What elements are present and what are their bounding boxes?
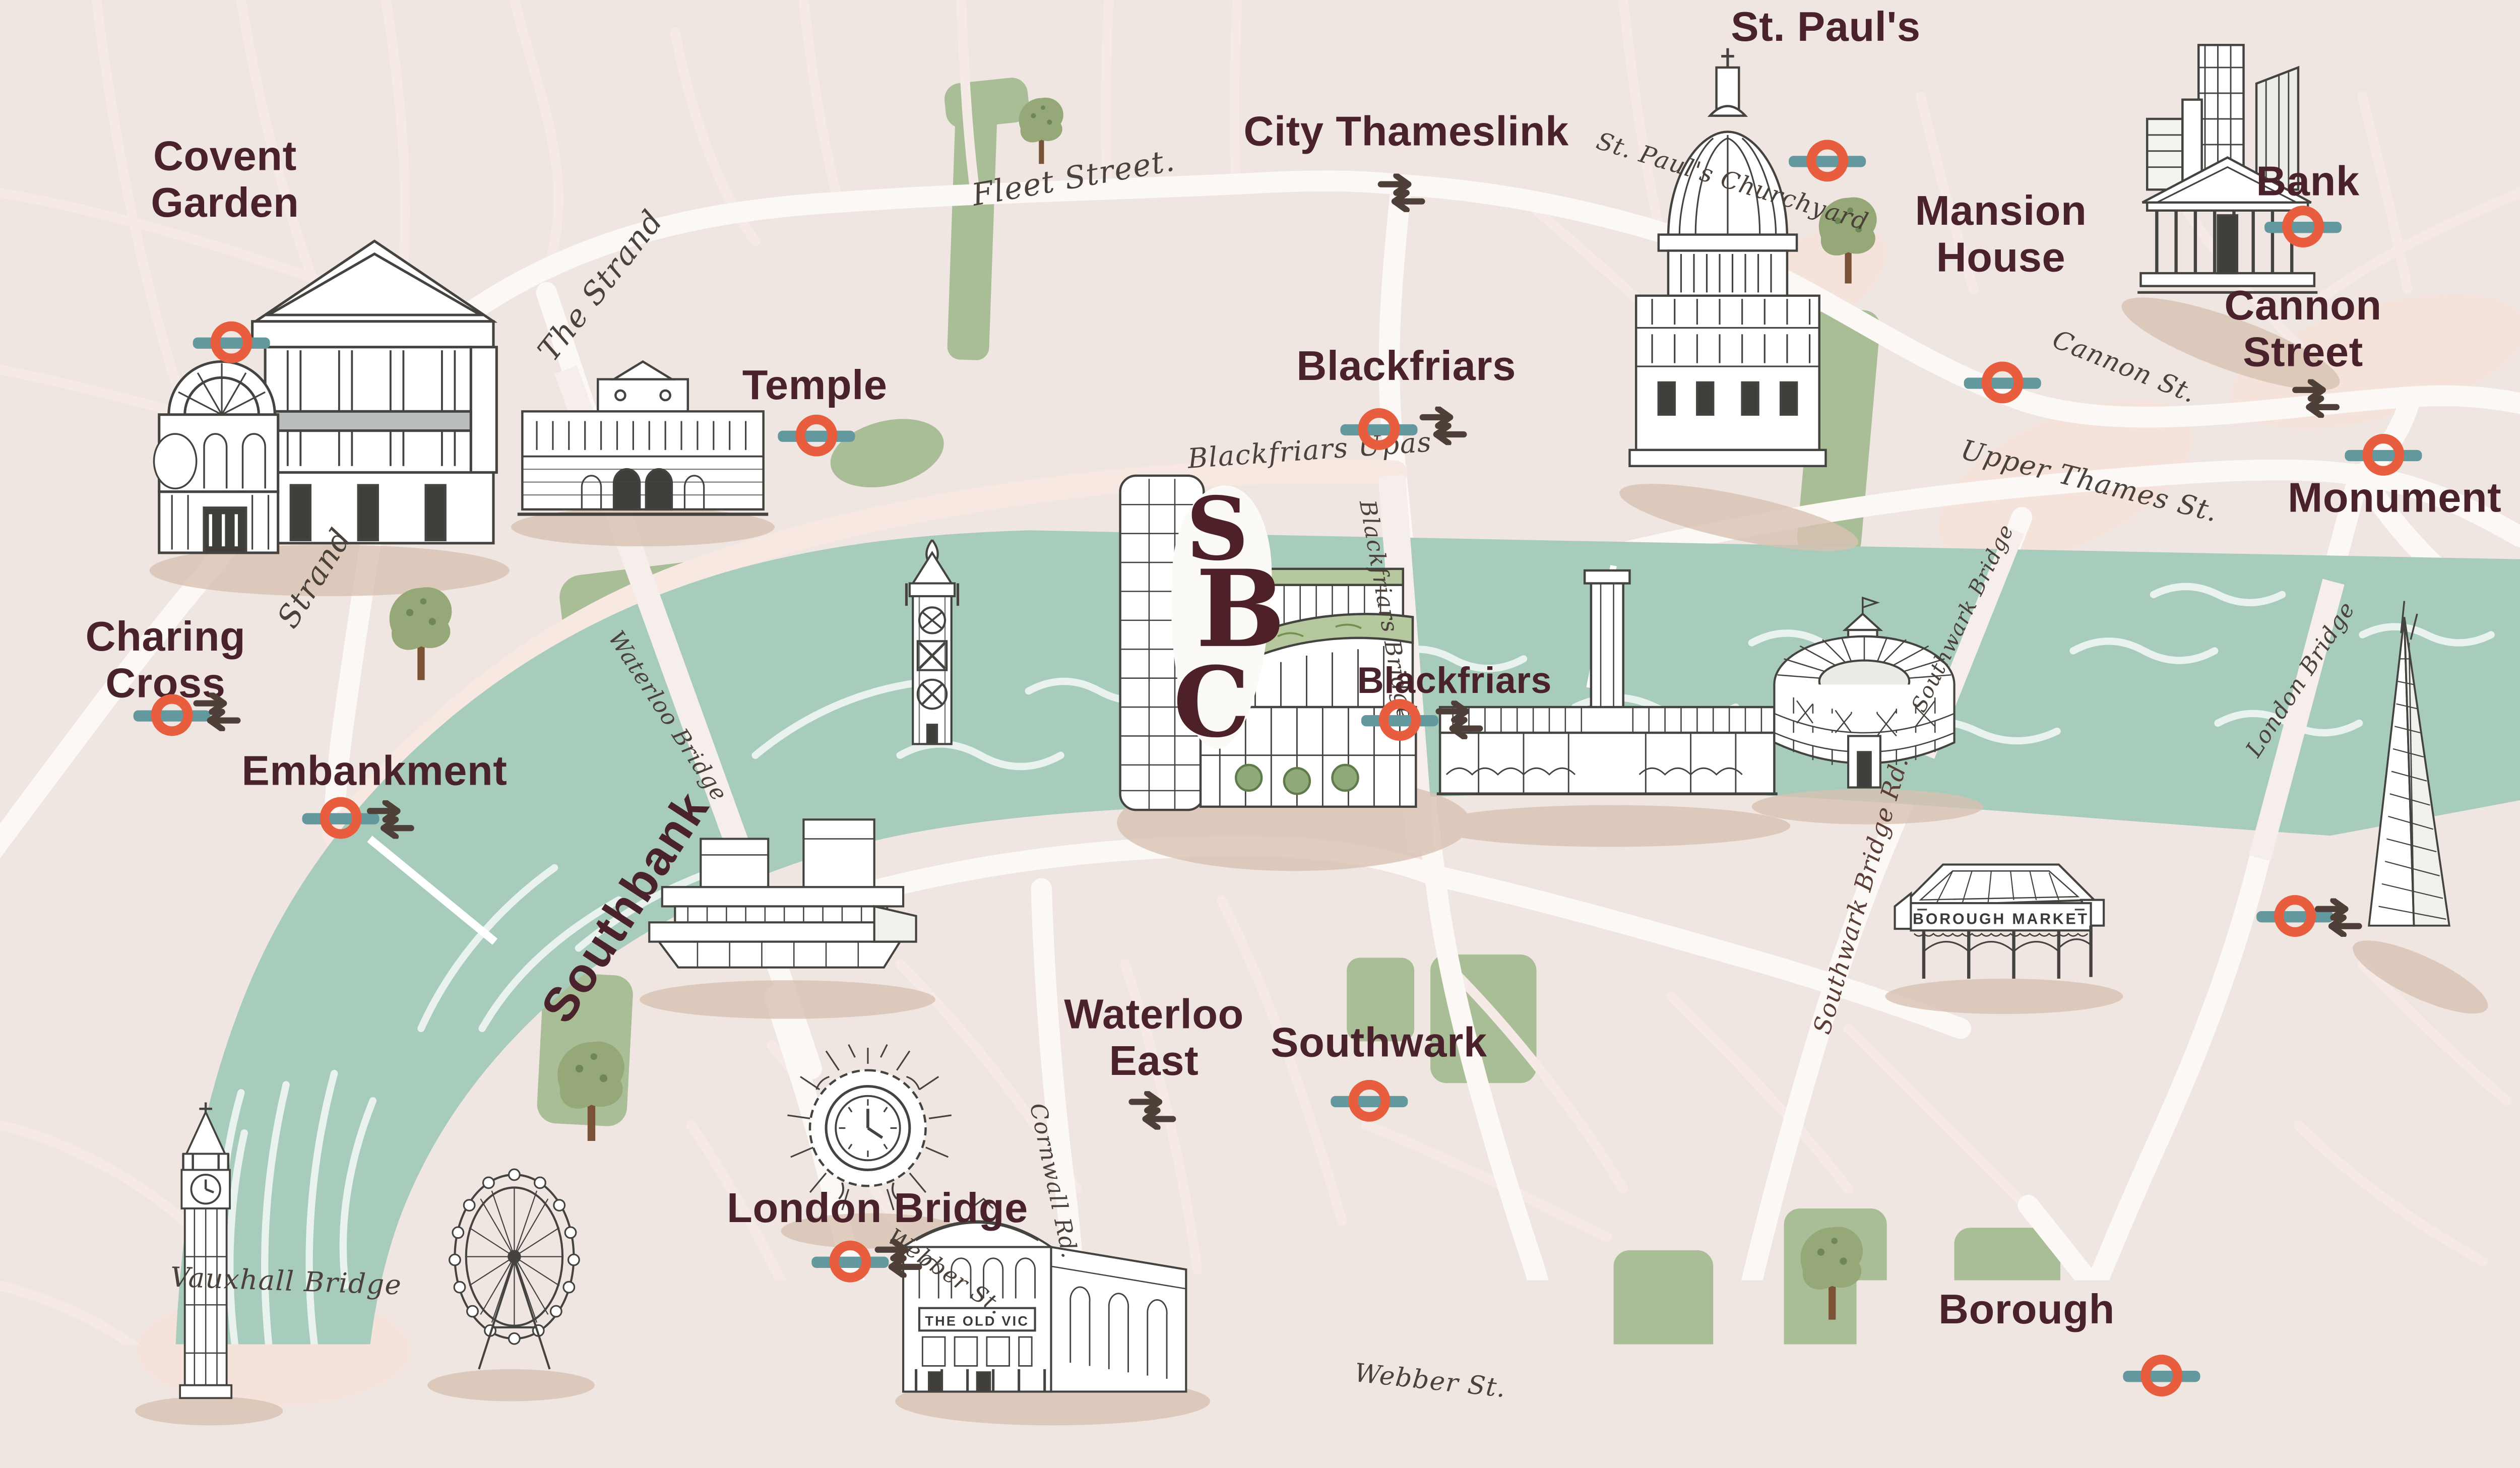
- roundel-ring: [795, 415, 837, 457]
- national-rail-icon-blackfriars: [1418, 407, 1469, 445]
- roundel-ring: [2363, 434, 2405, 476]
- station-label-monument: Monument: [2288, 475, 2501, 522]
- roundel-ring: [2282, 206, 2324, 247]
- station-label-mansion-house: Mansion House: [1915, 188, 2087, 282]
- roundel-ring: [2274, 895, 2316, 937]
- the-shard-illustration: [2356, 595, 2462, 940]
- london-eye-illustration: [440, 1157, 588, 1379]
- station-label-southwark: Southwark: [1271, 1019, 1487, 1066]
- station-label-waterloo-east: Waterloo East: [1064, 991, 1244, 1085]
- borough-market-sign: BOROUGH MARKET: [1913, 911, 2089, 928]
- tube-roundel-icon-southwark: [1348, 1080, 1390, 1122]
- roundel-ring: [829, 1241, 871, 1283]
- roundel-ring: [1358, 408, 1400, 450]
- sbc-logo-letter-c: C: [1173, 656, 1250, 752]
- station-label-bank: Bank: [2256, 158, 2359, 205]
- borough-market-illustration: BOROUGH MARKET: [1888, 852, 2109, 983]
- station-label-temple: Temple: [742, 362, 888, 409]
- tube-roundel-icon-blackfriars-riverside: [1379, 699, 1421, 741]
- st-pauls-cathedral-illustration: [1620, 45, 1835, 495]
- national-rail-icon-charing-cross: [191, 692, 242, 731]
- tube-roundel-icon-london-bridge: [829, 1241, 871, 1283]
- tube-roundel-icon-embankment: [320, 797, 362, 839]
- somerset-house-illustration: [518, 357, 768, 522]
- national-rail-icon-cannon-street: [2290, 379, 2342, 418]
- station-label-city-thameslink: City Thameslink: [1243, 108, 1568, 155]
- sbc-logo-letter-b: B: [1195, 556, 1285, 662]
- station-label-embankment: Embankment: [241, 748, 507, 795]
- big-ben-illustration: [161, 1103, 251, 1405]
- national-rail-icon-blackfriars-riverside: [1433, 700, 1485, 739]
- tube-roundel-icon-charing-cross: [151, 694, 193, 736]
- tube-roundel-icon-temple: [795, 415, 837, 457]
- national-rail-icon-london-bridge-station: [2313, 899, 2364, 937]
- roundel-ring: [320, 797, 362, 839]
- roundel-ring: [151, 694, 193, 736]
- tube-roundel-icon-borough: [2140, 1355, 2182, 1396]
- roundel-ring: [1982, 361, 2024, 403]
- old-vic-sign: THE OLD VIC: [925, 1313, 1029, 1329]
- tube-roundel-icon-st-pauls: [1806, 140, 1848, 181]
- national-rail-icon-city-thameslink: [1376, 173, 1427, 212]
- station-label-blackfriars: Blackfriars: [1296, 343, 1516, 390]
- tube-roundel-icon-covent-garden: [211, 322, 253, 363]
- roundel-ring: [1348, 1080, 1390, 1122]
- roundel-ring: [211, 322, 253, 363]
- illustrated-london-map: BOROUGH MARKET: [0, 0, 2520, 1467]
- oxo-tower-illustration: [897, 535, 967, 752]
- roundel-ring: [1379, 699, 1421, 741]
- national-rail-icon-embankment: [365, 800, 416, 839]
- national-rail-icon-london-bridge: [873, 1239, 924, 1278]
- roundel-ring: [2140, 1355, 2182, 1396]
- tube-roundel-icon-london-bridge-station: [2274, 895, 2316, 937]
- national-rail-icon-waterloo-east: [1126, 1091, 1178, 1130]
- tube-roundel-icon-mansion-house: [1982, 361, 2024, 403]
- roundel-ring: [1806, 140, 1848, 181]
- royal-opera-house-illustration: [153, 222, 498, 565]
- tube-roundel-icon-bank: [2282, 206, 2324, 247]
- station-label-st-pauls: St. Paul's: [1731, 4, 1920, 51]
- globe-theatre-illustration: [1755, 595, 1974, 804]
- station-label-covent-garden: Covent Garden: [151, 133, 299, 227]
- station-label-blackfriars-riverside: Blackfriars: [1357, 661, 1552, 702]
- station-label-london-bridge: London Bridge: [727, 1185, 1028, 1232]
- tube-roundel-icon-blackfriars: [1358, 408, 1400, 450]
- station-label-borough: Borough: [1938, 1286, 2115, 1333]
- tube-roundel-icon-monument: [2363, 434, 2405, 476]
- station-label-cannon-street: Cannon Street: [2224, 283, 2381, 376]
- sbc-logo: S B C: [1160, 476, 1286, 765]
